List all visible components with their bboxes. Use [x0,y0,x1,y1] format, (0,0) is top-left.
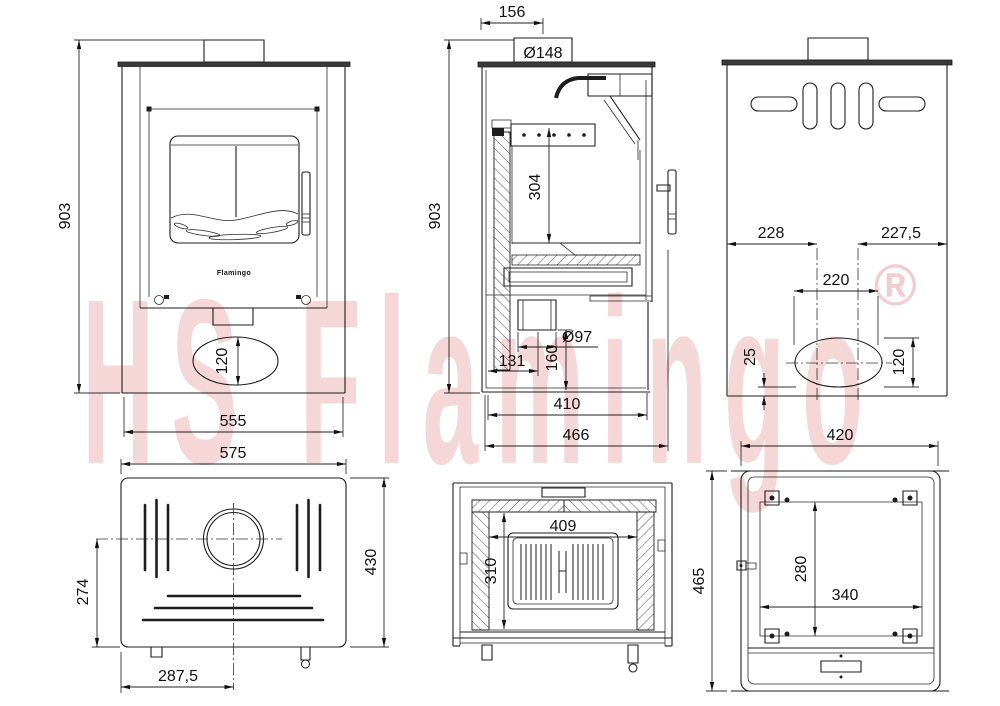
dim-front-width: 555 [124,397,343,437]
dim-label: 465 [691,568,708,595]
insulation-hatch [494,132,510,370]
ash-lid-recess [213,308,253,325]
dim-label: 220 [823,272,850,289]
ash-drawer-front [748,648,934,679]
top-plate [478,62,655,67]
deflector [610,96,640,140]
dim-side-overall-depth: 466 [485,250,668,451]
dim-label: 304 [527,174,544,201]
ash-drawer [504,268,632,286]
dim-label: 160 [544,345,561,372]
dim-label: 555 [220,413,247,430]
dim-side-base-depth: 410 [488,393,647,420]
dim-top-flue-from-left: 287,5 [121,652,234,693]
dim-bottom-inner-depth: 280 [793,502,815,636]
side-section-view: Ø148 156 903 304 [427,4,676,451]
dim-back-outlet-height: 120 [884,338,919,387]
door-frame [147,107,320,298]
left-convection-panel [453,483,467,646]
dim-side-flue-offset: 156 [481,4,543,34]
dim-back-bottom-offset: 25 [742,348,796,410]
rear-leg [151,647,162,657]
dim-side-firebox-depth: 304 [527,128,549,243]
flame-wave [171,211,298,221]
dim-front-height: 903 [57,40,204,393]
dim-label: 227,5 [881,225,921,242]
air-controls [155,295,311,305]
dim-label: 340 [832,587,859,604]
dim-label: 120 [214,348,231,375]
dim-label: 430 [363,549,380,576]
back-view: 228 227,5 220 25 120 [722,38,952,410]
front-view: Flamingo 903 120 555 [57,40,350,437]
dim-bottom-width: 420 [741,427,938,466]
door-handle [657,170,676,234]
top-plate [118,62,350,67]
dim-back-left-offset: 228 [727,225,817,244]
rear-outlet-oval [795,338,882,387]
top-plate [722,60,952,65]
dim-label: 409 [550,518,577,535]
side-insulation-right [637,512,654,630]
dim-top-depth: 430 [350,478,389,647]
dim-label: 25 [742,348,759,366]
top-view: 575 430 274 287,5 [75,445,389,693]
dim-label: 420 [827,427,854,444]
top-insulation-left [472,500,564,512]
top-vent-slots [143,500,323,620]
left-leg [482,645,492,660]
flue-collar-behind [542,488,585,497]
drawing-sheet: Flamingo 903 120 555 Ø148 [0,0,1000,706]
bottom-view: 420 465 280 340 [691,427,949,691]
dim-top-flue-from-front: 274 [75,539,120,647]
front-section-view: 409 310 [453,483,672,672]
grate-bars [521,544,603,600]
mounting-brackets [765,491,917,643]
dim-label: 280 [793,556,810,583]
top-insulation-right [564,500,656,512]
dim-label-flue-diameter: Ø148 [523,45,562,62]
door-glass [170,136,299,243]
dim-label: 903 [57,203,74,230]
dim-label: 466 [563,427,590,444]
dim-top-width: 575 [121,445,346,474]
dim-label: 228 [758,225,785,242]
flue-collar [808,38,868,60]
floor-hatch [512,255,640,265]
right-convection-panel [658,483,672,646]
dim-label: 903 [427,203,444,230]
dim-bottom-depth: 465 [691,471,727,691]
dim-label: 120 [891,349,908,376]
right-leg [628,645,638,663]
bottom-plate [760,502,922,636]
door-handle [302,172,310,235]
vent-slots [751,83,925,129]
air-inlet-stub [518,300,556,330]
dim-label: 156 [499,4,526,21]
flue-collar [204,40,264,62]
ash-lever [590,296,652,301]
dim-front-ash-oval: 120 [214,337,238,385]
dim-bottom-inner-width: 340 [760,587,922,607]
ash-door-oval [193,337,278,385]
dim-label: 310 [483,558,500,585]
dim-back-right-offset: 227,5 [858,225,947,244]
dim-back-outlet-width: 220 [794,272,878,345]
dim-label: 274 [75,579,92,606]
drawer-handle [821,661,861,672]
air-duct [556,78,606,98]
dim-label: 575 [220,445,247,462]
door-logo: Flamingo [217,270,251,277]
dim-label: 287,5 [158,668,198,685]
dim-section-firebox-width: 409 [489,518,637,537]
base-outline [741,471,940,691]
dim-label: 410 [554,396,581,413]
dim-label: 131 [499,353,526,370]
stove-technical-drawing: Flamingo 903 120 555 Ø148 [0,0,1000,706]
front-leg [301,647,310,660]
side-latch [737,561,756,570]
